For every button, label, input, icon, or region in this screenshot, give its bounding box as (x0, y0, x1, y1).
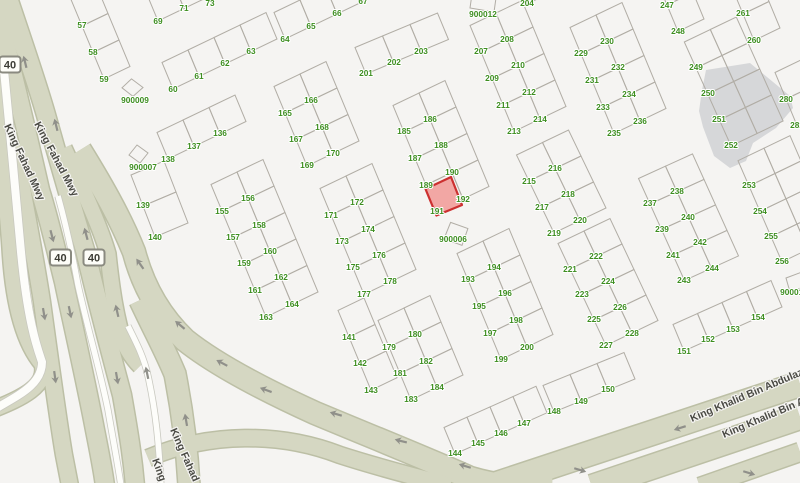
svg-text:40: 40 (88, 253, 100, 265)
svg-text:140: 140 (148, 232, 162, 242)
svg-text:241: 241 (666, 250, 680, 260)
svg-text:216: 216 (548, 163, 562, 173)
svg-text:60: 60 (168, 84, 178, 94)
svg-text:158: 158 (252, 220, 266, 230)
svg-text:212: 212 (522, 87, 536, 97)
svg-text:233: 233 (596, 102, 610, 112)
svg-text:63: 63 (246, 46, 256, 56)
svg-text:900016: 900016 (780, 287, 800, 297)
svg-text:252: 252 (724, 140, 738, 150)
svg-text:159: 159 (237, 258, 251, 268)
svg-text:201: 201 (359, 68, 373, 78)
svg-text:243: 243 (677, 275, 691, 285)
svg-text:170: 170 (326, 148, 340, 158)
svg-text:143: 143 (364, 385, 378, 395)
svg-text:226: 226 (613, 302, 627, 312)
svg-text:215: 215 (522, 176, 536, 186)
svg-text:217: 217 (535, 202, 549, 212)
svg-text:136: 136 (213, 128, 227, 138)
svg-text:181: 181 (393, 368, 407, 378)
svg-text:71: 71 (179, 3, 189, 13)
svg-text:196: 196 (498, 288, 512, 298)
svg-text:142: 142 (353, 358, 367, 368)
svg-text:247: 247 (660, 0, 674, 10)
svg-text:69: 69 (153, 16, 163, 26)
svg-text:40: 40 (54, 253, 66, 265)
svg-text:188: 188 (434, 140, 448, 150)
svg-text:231: 231 (585, 75, 599, 85)
svg-text:185: 185 (397, 126, 411, 136)
svg-text:194: 194 (487, 262, 501, 272)
svg-text:176: 176 (372, 250, 386, 260)
svg-text:182: 182 (419, 356, 433, 366)
svg-text:222: 222 (589, 251, 603, 261)
svg-text:195: 195 (472, 301, 486, 311)
svg-text:208: 208 (500, 34, 514, 44)
svg-text:242: 242 (693, 237, 707, 247)
svg-text:157: 157 (226, 232, 240, 242)
svg-text:900007: 900007 (129, 162, 157, 172)
svg-text:154: 154 (751, 312, 765, 322)
svg-text:139: 139 (136, 200, 150, 210)
svg-text:227: 227 (599, 340, 613, 350)
svg-text:237: 237 (643, 198, 657, 208)
svg-text:256: 256 (775, 256, 789, 266)
svg-text:155: 155 (215, 206, 229, 216)
svg-text:250: 250 (701, 88, 715, 98)
svg-text:221: 221 (563, 264, 577, 274)
svg-text:248: 248 (671, 26, 685, 36)
svg-text:209: 209 (485, 73, 499, 83)
svg-text:203: 203 (414, 46, 428, 56)
svg-text:59: 59 (99, 74, 109, 84)
svg-text:192: 192 (456, 194, 470, 204)
svg-text:281: 281 (790, 120, 800, 130)
svg-text:254: 254 (753, 206, 767, 216)
svg-text:234: 234 (622, 89, 636, 99)
svg-text:280: 280 (779, 94, 793, 104)
svg-text:900006: 900006 (439, 234, 467, 244)
svg-text:197: 197 (483, 328, 497, 338)
svg-text:261: 261 (736, 8, 750, 18)
svg-text:229: 229 (574, 48, 588, 58)
svg-text:900009: 900009 (121, 95, 149, 105)
svg-text:249: 249 (689, 62, 703, 72)
svg-text:235: 235 (607, 128, 621, 138)
svg-text:62: 62 (220, 58, 230, 68)
svg-text:224: 224 (601, 276, 615, 286)
svg-text:145: 145 (471, 438, 485, 448)
svg-text:187: 187 (408, 153, 422, 163)
svg-text:200: 200 (520, 342, 534, 352)
svg-text:156: 156 (241, 193, 255, 203)
svg-text:204: 204 (520, 0, 534, 8)
svg-text:160: 160 (263, 246, 277, 256)
svg-text:180: 180 (408, 329, 422, 339)
svg-text:900012: 900012 (469, 9, 497, 19)
svg-text:202: 202 (387, 57, 401, 67)
svg-text:173: 173 (335, 236, 349, 246)
svg-text:207: 207 (474, 46, 488, 56)
svg-text:255: 255 (764, 231, 778, 241)
svg-text:253: 253 (742, 180, 756, 190)
svg-text:161: 161 (248, 285, 262, 295)
svg-text:211: 211 (496, 100, 510, 110)
svg-text:232: 232 (611, 62, 625, 72)
svg-text:214: 214 (533, 114, 547, 124)
svg-text:230: 230 (600, 36, 614, 46)
svg-text:251: 251 (712, 114, 726, 124)
svg-text:152: 152 (701, 334, 715, 344)
svg-text:171: 171 (324, 210, 338, 220)
svg-text:58: 58 (88, 47, 98, 57)
svg-text:184: 184 (430, 382, 444, 392)
svg-text:225: 225 (587, 314, 601, 324)
svg-text:61: 61 (194, 71, 204, 81)
svg-text:67: 67 (358, 0, 368, 6)
svg-text:179: 179 (382, 342, 396, 352)
svg-text:223: 223 (575, 289, 589, 299)
svg-text:165: 165 (278, 108, 292, 118)
svg-text:236: 236 (633, 116, 647, 126)
svg-text:175: 175 (346, 262, 360, 272)
svg-text:193: 193 (461, 274, 475, 284)
svg-text:167: 167 (289, 134, 303, 144)
svg-text:169: 169 (300, 160, 314, 170)
svg-text:177: 177 (357, 289, 371, 299)
svg-text:238: 238 (670, 186, 684, 196)
svg-text:166: 166 (304, 95, 318, 105)
svg-text:189: 189 (419, 180, 433, 190)
svg-text:190: 190 (445, 167, 459, 177)
svg-text:151: 151 (677, 346, 691, 356)
svg-text:240: 240 (681, 212, 695, 222)
svg-text:239: 239 (655, 224, 669, 234)
svg-text:164: 164 (285, 299, 299, 309)
svg-text:149: 149 (574, 396, 588, 406)
svg-text:260: 260 (747, 35, 761, 45)
svg-text:220: 220 (573, 215, 587, 225)
svg-text:73: 73 (205, 0, 215, 8)
svg-text:138: 138 (161, 154, 175, 164)
svg-text:191: 191 (430, 206, 444, 216)
svg-text:186: 186 (423, 114, 437, 124)
svg-text:137: 137 (187, 141, 201, 151)
svg-text:148: 148 (547, 406, 561, 416)
svg-text:183: 183 (404, 394, 418, 404)
svg-text:150: 150 (601, 384, 615, 394)
svg-text:57: 57 (77, 20, 87, 30)
svg-text:144: 144 (448, 448, 462, 458)
svg-text:174: 174 (361, 224, 375, 234)
svg-text:198: 198 (509, 315, 523, 325)
svg-text:162: 162 (274, 272, 288, 282)
svg-text:244: 244 (705, 263, 719, 273)
svg-text:141: 141 (342, 332, 356, 342)
svg-text:219: 219 (547, 228, 561, 238)
svg-text:65: 65 (306, 21, 316, 31)
svg-text:146: 146 (494, 428, 508, 438)
svg-text:66: 66 (332, 8, 342, 18)
svg-text:40: 40 (4, 60, 16, 72)
svg-text:210: 210 (511, 60, 525, 70)
svg-text:168: 168 (315, 122, 329, 132)
svg-text:172: 172 (350, 197, 364, 207)
svg-text:153: 153 (726, 324, 740, 334)
svg-text:228: 228 (625, 328, 639, 338)
svg-text:163: 163 (259, 312, 273, 322)
svg-text:213: 213 (507, 126, 521, 136)
svg-text:218: 218 (561, 189, 575, 199)
svg-text:199: 199 (494, 354, 508, 364)
svg-text:147: 147 (517, 418, 531, 428)
svg-text:64: 64 (280, 34, 290, 44)
svg-text:178: 178 (383, 276, 397, 286)
